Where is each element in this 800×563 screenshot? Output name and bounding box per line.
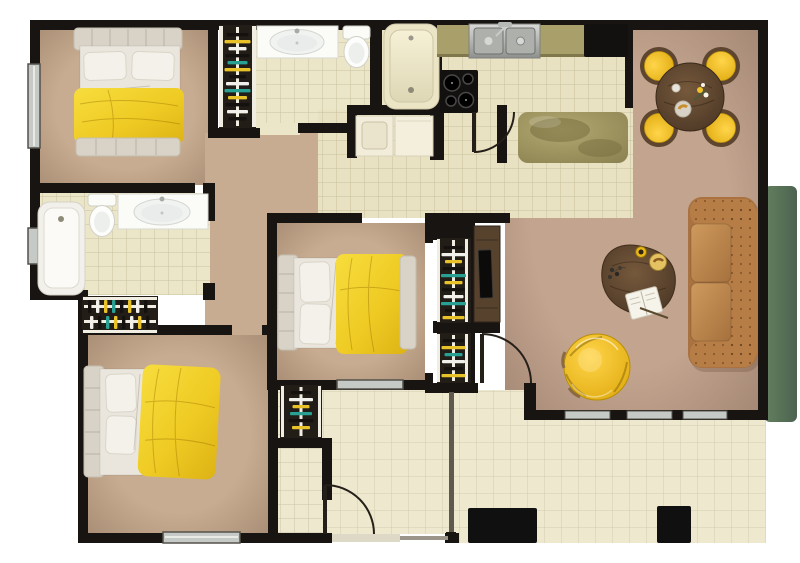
- clothes-item: [293, 405, 310, 408]
- bathroom-1-door-tile: [256, 123, 300, 135]
- closet-rail: [83, 330, 157, 333]
- clothes-item: [445, 353, 463, 356]
- flower: [704, 93, 709, 98]
- sofa-seat-cushion: [691, 283, 731, 341]
- clothes-item: [445, 281, 463, 284]
- clothes-item: [229, 75, 246, 78]
- clothes-item: [443, 339, 464, 342]
- sofa-seat-cushion: [691, 224, 731, 282]
- washer-door: [362, 122, 387, 149]
- flower: [701, 83, 705, 87]
- sink-drain: [161, 212, 164, 215]
- sliding-glass-door: [627, 411, 672, 419]
- bed-footboard: [400, 256, 416, 349]
- faucet: [295, 29, 300, 34]
- pillow: [105, 415, 136, 454]
- divider-post: [446, 385, 456, 392]
- clothes-item: [138, 316, 141, 329]
- clothes-item: [90, 316, 93, 329]
- clothes-item: [228, 96, 247, 99]
- refrigerator: [584, 24, 628, 57]
- toilet-tank: [88, 194, 116, 206]
- clothes-item: [445, 260, 462, 263]
- berry: [608, 275, 612, 279]
- clothes-item: [225, 89, 251, 92]
- toilet-seat: [94, 212, 110, 233]
- counter-right: [539, 25, 585, 57]
- television: [478, 250, 493, 298]
- clothes-item: [226, 54, 250, 57]
- clothes-item: [122, 316, 125, 329]
- clothes-item: [144, 300, 147, 313]
- clothes-item: [228, 61, 248, 64]
- clothes-item: [88, 300, 91, 313]
- clothes-item: [441, 274, 466, 277]
- duvet: [137, 364, 221, 480]
- clothes-item: [229, 47, 247, 50]
- dining-table: [656, 63, 724, 131]
- clothes-item: [106, 316, 109, 329]
- clothes-item: [225, 40, 251, 43]
- clothes-item: [445, 309, 462, 312]
- closet-rail: [318, 386, 321, 437]
- clothes-item: [442, 360, 465, 363]
- wall-segment: [524, 383, 536, 417]
- tub-drain: [58, 216, 64, 222]
- clothes-item: [443, 316, 465, 319]
- faucet: [160, 197, 165, 202]
- plate: [650, 254, 667, 271]
- burner: [463, 74, 473, 84]
- tv-console: [474, 226, 500, 322]
- closet-rail: [437, 239, 440, 322]
- island-texture: [578, 139, 622, 157]
- clothes-item: [444, 367, 463, 370]
- tub-faucet: [409, 36, 414, 41]
- clothes-item: [146, 316, 149, 329]
- clothes-item: [104, 300, 107, 313]
- closet-bedroom-2-lower: [437, 333, 471, 383]
- sink-drain-right: [517, 37, 525, 45]
- sliding-glass-door: [565, 411, 610, 419]
- island-highlight: [529, 116, 561, 128]
- bed-bedroom-2: [278, 254, 416, 354]
- divider-panel: [449, 388, 454, 536]
- entry-threshold: [332, 534, 400, 542]
- clothes-item: [136, 300, 139, 313]
- closet-bedroom-1: [219, 25, 256, 128]
- dryer-counter: [395, 116, 433, 156]
- closet-rail: [281, 386, 284, 437]
- toilet-seat: [349, 43, 365, 64]
- planter: [657, 506, 691, 543]
- wall-segment: [208, 20, 218, 138]
- window-bedroom-2: [337, 380, 403, 389]
- burner-dot: [451, 82, 453, 84]
- clothes-item: [128, 300, 131, 313]
- clothes-item: [442, 346, 466, 349]
- closet-rod: [84, 320, 156, 323]
- planter: [468, 508, 537, 543]
- clothes-item: [292, 426, 310, 429]
- walkway-tile-grid: [322, 390, 449, 534]
- sofa-tufting: [729, 202, 757, 363]
- wall-segment: [240, 533, 332, 543]
- wall-segment: [78, 533, 163, 543]
- closet-rail: [83, 297, 157, 300]
- clothes-item: [98, 316, 101, 329]
- pillow: [299, 303, 330, 344]
- closet-rod: [452, 240, 455, 321]
- armchair-cushion-highlight: [578, 348, 602, 372]
- counter-left: [437, 25, 471, 57]
- clothes-item: [444, 295, 464, 298]
- clothes-item: [442, 253, 466, 256]
- corridor-carpet: [260, 133, 318, 218]
- wall-segment: [433, 223, 471, 240]
- closet-bedroom-3: [82, 296, 158, 333]
- wall-segment: [267, 213, 277, 390]
- berry: [615, 272, 619, 276]
- wall-segment: [268, 388, 278, 536]
- clothes-item: [112, 300, 115, 313]
- closet-bedroom-2-upper: [437, 238, 471, 323]
- clothes-item: [227, 33, 249, 36]
- clothes-item: [229, 117, 247, 120]
- clothes-item: [444, 246, 464, 249]
- duvet-group: [137, 364, 221, 480]
- bed-bedroom-1: [74, 28, 184, 156]
- clothes-item: [290, 412, 312, 415]
- clothes-item: [130, 316, 133, 329]
- closet-rail: [252, 26, 256, 127]
- cup: [672, 84, 680, 92]
- closet-rail: [437, 334, 440, 382]
- clothes-item: [442, 374, 466, 377]
- sink-drain: [296, 42, 299, 45]
- window-bathroom-2: [28, 228, 38, 264]
- wall-segment: [425, 223, 433, 243]
- bed-bedroom-3: [84, 364, 221, 480]
- closet-rail: [219, 26, 223, 127]
- pillow: [299, 261, 330, 302]
- wall-segment: [497, 105, 507, 163]
- berry: [610, 268, 614, 272]
- flower: [697, 87, 703, 93]
- clothes-item: [291, 391, 311, 394]
- clothes-item: [96, 300, 99, 313]
- pillow: [105, 373, 136, 412]
- sink-drain-left: [485, 37, 493, 45]
- burner: [446, 96, 456, 106]
- wall-segment: [203, 283, 215, 300]
- pillow: [132, 51, 175, 80]
- sofa: [688, 197, 760, 372]
- bed-footboard: [76, 138, 180, 156]
- clothes-item: [226, 103, 250, 106]
- clothes-item: [289, 419, 314, 422]
- clothes-item: [226, 82, 249, 85]
- closet-rail: [465, 239, 468, 322]
- closet-entry: [280, 385, 322, 438]
- wall-segment: [267, 213, 362, 223]
- armchair: [563, 334, 630, 400]
- clothes-item: [114, 316, 117, 329]
- wall-segment: [425, 213, 510, 223]
- mug-coffee: [639, 250, 644, 255]
- hedge-strip: [764, 186, 797, 422]
- laundry-appliances: [356, 116, 433, 156]
- plate: [675, 101, 691, 117]
- clothes-item: [227, 110, 248, 113]
- pillow: [84, 51, 127, 80]
- clothes-item: [289, 398, 313, 401]
- duvet: [74, 88, 184, 144]
- wall-segment: [208, 128, 260, 138]
- wall-segment: [370, 25, 382, 113]
- clothes-item: [225, 68, 251, 71]
- burner-dot: [465, 99, 467, 101]
- clothes-item: [441, 302, 466, 305]
- clothes-item: [442, 288, 465, 291]
- floor-plan-page: [0, 0, 800, 563]
- wall-segment: [262, 325, 277, 335]
- kitchen-faucet: [498, 22, 512, 27]
- tub-drain: [408, 87, 414, 93]
- sliding-glass-door: [683, 411, 727, 419]
- clothes-item: [120, 300, 123, 313]
- floor-plan: [0, 0, 800, 563]
- wall-segment: [30, 183, 195, 193]
- walkway-step-edge: [400, 536, 448, 540]
- clothes-item: [443, 267, 465, 270]
